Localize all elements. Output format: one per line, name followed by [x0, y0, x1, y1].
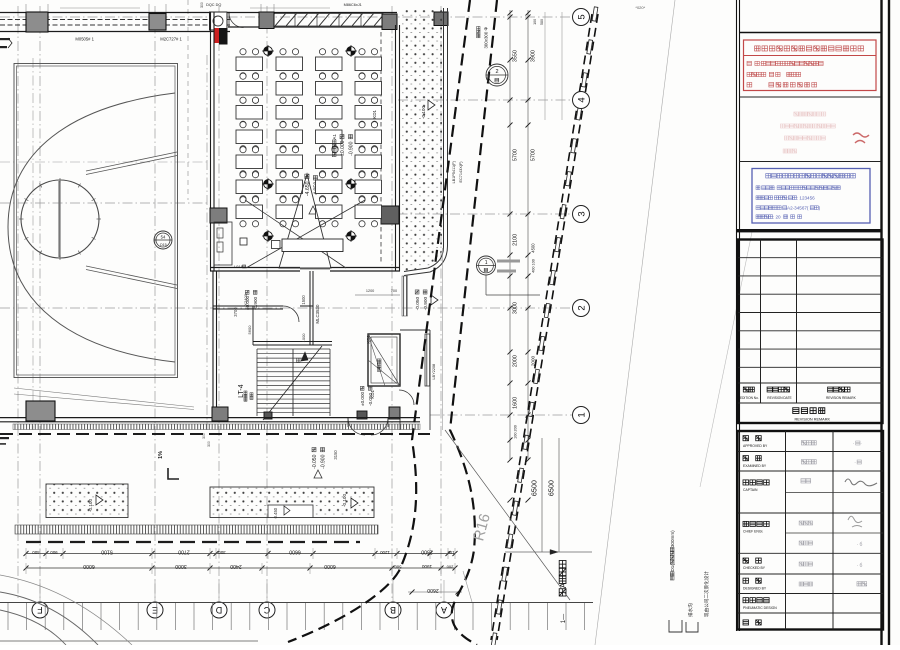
svg-text:-0.100: -0.100	[88, 499, 93, 512]
svg-text:400 100: 400 100	[532, 259, 536, 273]
svg-text:580: 580	[540, 19, 544, 25]
svg-text:6000: 6000	[83, 563, 95, 569]
svg-text:1200: 1200	[366, 289, 374, 293]
svg-text:: 123456: : 123456	[797, 196, 815, 201]
svg-text:500: 500	[394, 565, 402, 570]
svg-text:M0505# 1: M0505# 1	[75, 37, 94, 42]
svg-text:LBY2208: LBY2208	[432, 364, 436, 380]
svg-text:DQC DQ: DQC DQ	[206, 3, 221, 7]
svg-text::: :	[760, 62, 761, 68]
svg-text::: :	[774, 186, 775, 191]
svg-text:EDITION No.: EDITION No.	[740, 396, 759, 400]
svg-text:100: 100	[447, 550, 454, 555]
svg-text:2: 2	[495, 69, 498, 75]
svg-text:3150: 3150	[333, 450, 338, 460]
svg-text:4: 4	[576, 97, 587, 102]
svg-text:300: 300	[200, 2, 204, 8]
svg-text:1600: 1600	[513, 397, 519, 409]
svg-text:5: 5	[576, 14, 587, 19]
svg-text:300: 300	[202, 433, 206, 439]
svg-text:5600: 5600	[247, 325, 252, 335]
svg-text:1%: 1%	[158, 451, 164, 459]
svg-text:±0.000: ±0.000	[360, 391, 365, 405]
svg-text:300x300 Φ: 300x300 Φ	[484, 26, 489, 48]
svg-text:6500: 6500	[547, 480, 556, 496]
svg-text:2500: 2500	[421, 549, 433, 555]
svg-text::: :	[787, 196, 788, 201]
svg-text:A: A	[441, 605, 447, 615]
svg-text:D15: D15	[160, 243, 167, 247]
svg-text:3000: 3000	[513, 302, 519, 314]
svg-text:1500: 1500	[301, 295, 306, 305]
svg-text:CHIEF ENGI.: CHIEF ENGI.	[743, 530, 763, 534]
svg-text:D1(: D1(	[670, 564, 675, 572]
svg-text:300mm): 300mm)	[670, 530, 675, 547]
svg-text:900: 900	[50, 550, 58, 555]
svg-text:EXAMINED BY: EXAMINED BY	[743, 464, 767, 468]
svg-text:300: 300	[218, 550, 226, 555]
svg-text:M86C6xJ1: M86C6xJ1	[344, 3, 362, 7]
svg-text:MLC3530: MLC3530	[315, 304, 320, 324]
svg-text:700: 700	[391, 289, 397, 293]
svg-text:5700: 5700	[513, 149, 519, 161]
svg-text:CHECKED BY: CHECKED BY	[743, 566, 766, 570]
svg-text:4500: 4500	[531, 243, 536, 253]
svg-text:-0.900: -0.900	[349, 141, 355, 155]
svg-text:*020*: *020*	[635, 5, 645, 10]
svg-text:2400: 2400	[230, 563, 242, 569]
svg-text:-0.050: -0.050	[312, 454, 318, 468]
svg-text:200: 200	[446, 565, 453, 570]
svg-text:排水沟: 排水沟	[687, 603, 694, 617]
svg-text:A2-34567(: A2-34567(	[787, 206, 809, 211]
svg-text:· б: · б	[856, 542, 862, 548]
svg-text:1900: 1900	[421, 564, 432, 569]
svg-text:D: D	[215, 605, 222, 615]
svg-text:5100: 5100	[101, 549, 113, 555]
svg-text:1000: 1000	[301, 333, 306, 343]
svg-text:2000: 2000	[531, 355, 536, 366]
svg-text:: 20: : 20	[773, 215, 781, 220]
svg-text:-4.650: -4.650	[305, 181, 311, 196]
svg-text:C: C	[263, 605, 270, 615]
svg-text:0.450: 0.450	[273, 507, 278, 518]
svg-text:F: F	[37, 605, 43, 615]
svg-text:· б: · б	[856, 563, 862, 569]
svg-text:±0.000: ±0.000	[245, 295, 250, 309]
svg-text:1200: 1200	[380, 550, 390, 555]
svg-text:M2C727# 1: M2C727# 1	[160, 37, 182, 42]
svg-text:400: 400	[32, 550, 40, 555]
svg-text:REVISION REMARK: REVISION REMARK	[826, 396, 857, 400]
svg-text:±0.000: ±0.000	[340, 140, 346, 155]
svg-text:PNEUMATIC DESIGN: PNEUMATIC DESIGN	[743, 606, 777, 610]
svg-text:现由公司二次景化设计: 现由公司二次景化设计	[703, 571, 710, 617]
svg-text:B: B	[390, 605, 396, 615]
svg-text:APPROVED BY: APPROVED BY	[743, 444, 768, 448]
svg-text:3900: 3900	[531, 50, 537, 62]
svg-text:100 200: 100 200	[514, 425, 518, 439]
svg-text:KD1: KD1	[372, 109, 377, 118]
svg-text:3000: 3000	[175, 563, 187, 569]
svg-text:2100: 2100	[513, 234, 519, 246]
svg-text:REVISION DATE: REVISION DATE	[767, 396, 791, 400]
svg-text:LB1P5411(F): LB1P5411(F)	[452, 160, 456, 183]
svg-text:-0.050: -0.050	[415, 296, 421, 310]
svg-text:6600: 6600	[289, 549, 301, 555]
svg-text::: :	[781, 206, 782, 211]
svg-text:3550: 3550	[513, 50, 519, 62]
svg-text:3: 3	[576, 211, 587, 216]
svg-text:L01A: L01A	[234, 265, 243, 269]
svg-text:CAPTAIN: CAPTAIN	[743, 488, 758, 492]
svg-text:-0.100: -0.100	[421, 106, 426, 119]
svg-text:2: 2	[576, 305, 587, 310]
svg-text:100: 100	[533, 19, 537, 25]
svg-text:-0.900: -0.900	[423, 296, 429, 310]
svg-text:REVISION REMARK: REVISION REMARK	[795, 418, 831, 422]
svg-text:-0.100: -0.100	[342, 494, 347, 507]
svg-text:-0.900: -0.900	[253, 296, 258, 309]
svg-text:2000: 2000	[513, 355, 519, 367]
svg-text:1: 1	[576, 412, 587, 417]
svg-text:300: 300	[207, 441, 211, 447]
svg-text:DESIGNED BY: DESIGNED BY	[743, 586, 767, 590]
svg-text:EC7143X(F): EC7143X(F)	[459, 161, 463, 183]
svg-text:54: 54	[161, 235, 166, 240]
svg-text:-0.900: -0.900	[321, 454, 327, 468]
svg-text:2700: 2700	[178, 549, 190, 555]
svg-text:1—: 1—	[561, 614, 567, 623]
svg-text:-0.050: -0.050	[368, 392, 373, 405]
svg-text:6000: 6000	[324, 563, 336, 569]
svg-text:1: 1	[485, 260, 488, 266]
svg-text:A1: A1	[332, 134, 337, 140]
svg-text:3700: 3700	[233, 307, 238, 317]
svg-text:5700: 5700	[531, 149, 537, 161]
svg-text:6500: 6500	[530, 480, 539, 496]
